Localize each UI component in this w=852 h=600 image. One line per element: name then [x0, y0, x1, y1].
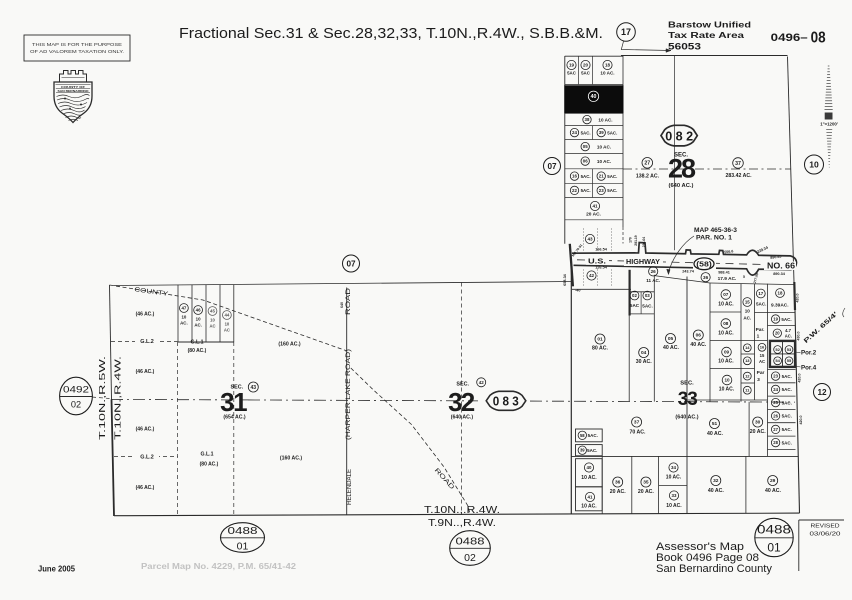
- svg-text:0488: 0488: [456, 536, 485, 548]
- svg-text:70 AC.: 70 AC.: [630, 430, 647, 436]
- svg-text:30: 30: [755, 420, 761, 426]
- svg-text:Barstow Unified: Barstow Unified: [668, 20, 751, 30]
- svg-text:01: 01: [237, 541, 249, 553]
- svg-text:REVISED: REVISED: [811, 524, 840, 530]
- svg-text:58: 58: [580, 433, 585, 438]
- svg-text:0488: 0488: [757, 523, 791, 537]
- svg-text:06: 06: [583, 159, 588, 164]
- svg-text:10 AC.: 10 AC.: [598, 118, 612, 123]
- svg-text:05: 05: [583, 144, 588, 149]
- svg-text:19: 19: [569, 63, 575, 68]
- svg-text:Tax Rate Area: Tax Rate Area: [668, 30, 744, 40]
- svg-text:10: 10: [724, 378, 730, 383]
- svg-text:12: 12: [817, 388, 827, 397]
- svg-text:02: 02: [71, 400, 81, 410]
- svg-text:02: 02: [464, 552, 476, 564]
- svg-text:0 8 2: 0 8 2: [665, 128, 693, 143]
- svg-text:10 AC.: 10 AC.: [718, 301, 734, 307]
- svg-text:890.34: 890.34: [773, 272, 786, 276]
- svg-text:05: 05: [668, 336, 674, 342]
- svg-text:(80 AC.): (80 AC.): [200, 462, 219, 468]
- svg-text:18: 18: [605, 63, 611, 68]
- svg-text:166.54: 166.54: [595, 248, 608, 252]
- svg-text:MAP 465-36-3: MAP 465-36-3: [694, 227, 738, 234]
- svg-text:41: 41: [592, 204, 598, 209]
- svg-text:10 AC.: 10 AC.: [600, 71, 614, 76]
- svg-text:45: 45: [210, 309, 215, 314]
- svg-text:AC: AC: [759, 359, 765, 364]
- svg-text:47: 47: [181, 306, 186, 311]
- svg-text:5AC: 5AC: [630, 303, 640, 308]
- svg-text:36: 36: [615, 480, 621, 486]
- svg-text:44: 44: [224, 313, 229, 318]
- svg-text:(80 AC.): (80 AC.): [188, 348, 207, 354]
- svg-text:AC: AC: [224, 328, 230, 333]
- svg-text:19: 19: [773, 317, 778, 322]
- svg-text:21: 21: [599, 174, 604, 179]
- svg-text:5: 5: [743, 275, 745, 279]
- svg-text:1: 1: [757, 334, 760, 340]
- svg-text:17.9 AC.: 17.9 AC.: [718, 276, 737, 282]
- svg-text:HELENDALE: HELENDALE: [346, 469, 353, 505]
- svg-text:T.9N..,R.4W.: T.9N..,R.4W.: [428, 518, 496, 529]
- svg-text:138.2 AC.: 138.2 AC.: [636, 174, 660, 180]
- svg-text:5AC: 5AC: [567, 71, 577, 76]
- svg-text:40 AC.: 40 AC.: [663, 345, 680, 351]
- svg-text:430.0: 430.0: [797, 332, 801, 341]
- svg-text:5AC.: 5AC.: [587, 448, 597, 453]
- svg-text:T.10N.,.R.4W.: T.10N.,.R.4W.: [424, 505, 500, 516]
- svg-text:20: 20: [775, 331, 780, 336]
- svg-text:988.41: 988.41: [718, 271, 730, 275]
- svg-text:22: 22: [572, 188, 577, 193]
- svg-text:P.W. 65/4′: P.W. 65/4′: [803, 310, 840, 344]
- svg-text:Par: Par: [757, 370, 765, 376]
- svg-text:03: 03: [645, 293, 650, 298]
- svg-text:5AC.: 5AC.: [781, 317, 791, 322]
- svg-text:40 AC.: 40 AC.: [707, 431, 724, 437]
- svg-text:NO. 66: NO. 66: [767, 262, 796, 271]
- svg-text:29: 29: [770, 478, 776, 484]
- svg-text:0496–: 0496–: [771, 32, 808, 44]
- svg-text:5AC.: 5AC.: [782, 387, 792, 392]
- svg-text:(654 AC.): (654 AC.): [223, 414, 246, 420]
- svg-text:10: 10: [210, 318, 215, 323]
- svg-text:54: 54: [775, 358, 780, 363]
- svg-text:5AC.: 5AC.: [607, 174, 617, 179]
- svg-text:420.0: 420.0: [796, 294, 800, 303]
- svg-text:10 AC.: 10 AC.: [666, 474, 682, 480]
- svg-text:AC.: AC.: [743, 316, 751, 321]
- svg-text:G.L.1: G.L.1: [191, 340, 204, 346]
- svg-text:4.7: 4.7: [785, 328, 791, 333]
- svg-text:5AC.: 5AC.: [782, 440, 792, 445]
- svg-text:T.10N.,R.4W.: T.10N.,R.4W.: [114, 356, 123, 440]
- svg-text:13: 13: [745, 358, 750, 363]
- svg-text:18: 18: [778, 291, 783, 296]
- svg-text:25: 25: [773, 400, 778, 405]
- svg-text:15: 15: [760, 353, 765, 358]
- svg-text:10 AC.: 10 AC.: [597, 145, 611, 150]
- svg-text:46: 46: [196, 308, 201, 313]
- svg-text:20 AC.: 20 AC.: [586, 212, 601, 218]
- svg-text:42: 42: [479, 380, 485, 385]
- svg-text:San Bernardino County: San Bernardino County: [656, 563, 772, 575]
- svg-text:170: 170: [629, 237, 633, 243]
- svg-text:291.04: 291.04: [642, 237, 646, 247]
- svg-text:556.6: 556.6: [724, 249, 733, 254]
- svg-text:03/06/20: 03/06/20: [810, 532, 841, 538]
- svg-text:THIS MAP IS FOR THE PURPOSE: THIS MAP IS FOR THE PURPOSE: [32, 42, 122, 47]
- svg-text:5AC.: 5AC.: [782, 400, 792, 405]
- svg-text:17: 17: [758, 291, 763, 296]
- svg-text:27: 27: [644, 161, 650, 167]
- svg-text:40: 40: [591, 94, 597, 100]
- svg-text:10: 10: [181, 315, 186, 320]
- svg-text:10 AC.: 10 AC.: [718, 330, 734, 336]
- svg-text:243.74: 243.74: [682, 269, 695, 273]
- svg-text:640: 640: [340, 302, 344, 308]
- svg-text:(HARPER LAKE ROAD): (HARPER LAKE ROAD): [346, 349, 352, 440]
- svg-text:ROAD: ROAD: [345, 288, 352, 315]
- svg-text:39: 39: [580, 448, 585, 453]
- svg-text:5AC.: 5AC.: [756, 301, 766, 306]
- svg-text:26: 26: [773, 413, 778, 418]
- svg-text:17: 17: [621, 27, 631, 37]
- svg-text:10: 10: [225, 322, 230, 327]
- svg-text:229.34: 229.34: [756, 245, 769, 254]
- svg-text:16: 16: [760, 345, 765, 350]
- svg-text:5AC.: 5AC.: [607, 130, 617, 135]
- svg-text:658.34: 658.34: [563, 273, 567, 286]
- svg-text:16: 16: [572, 174, 577, 179]
- svg-text:20 AC.: 20 AC.: [610, 489, 627, 495]
- svg-text:40 AC.: 40 AC.: [708, 488, 725, 494]
- svg-text:10 AC.: 10 AC.: [581, 504, 597, 510]
- svg-text:01: 01: [597, 337, 603, 343]
- svg-text:39: 39: [599, 130, 604, 135]
- svg-text:43: 43: [251, 385, 257, 391]
- svg-text:(640 AC.): (640 AC.): [669, 183, 694, 189]
- svg-text:15: 15: [745, 300, 750, 305]
- svg-text:1"=1200′: 1"=1200′: [820, 122, 838, 127]
- svg-text:420.0: 420.0: [798, 374, 802, 383]
- svg-text:27: 27: [773, 427, 778, 432]
- svg-text:10 AC.: 10 AC.: [597, 159, 611, 164]
- svg-text:G.L.1: G.L.1: [201, 452, 214, 458]
- svg-text:43: 43: [587, 237, 593, 242]
- svg-text:June 2005: June 2005: [38, 565, 76, 574]
- svg-text:32: 32: [713, 478, 719, 484]
- svg-text:SAN BERNARDINO: SAN BERNARDINO: [58, 89, 90, 93]
- svg-text:08: 08: [723, 321, 729, 326]
- svg-text:10 AC.: 10 AC.: [666, 503, 682, 509]
- svg-text:38: 38: [585, 117, 590, 122]
- svg-text:10: 10: [809, 160, 819, 170]
- svg-text:11: 11: [745, 388, 750, 393]
- svg-text:PAR. NO. 1: PAR. NO. 1: [696, 235, 733, 242]
- svg-text:(640 AC.): (640 AC.): [451, 415, 474, 421]
- svg-text:53: 53: [787, 347, 792, 352]
- svg-text:Por.4: Por.4: [801, 365, 817, 372]
- svg-text:(46 AC.): (46 AC.): [136, 369, 155, 375]
- svg-text:51: 51: [712, 421, 718, 427]
- svg-text:0492: 0492: [63, 385, 89, 395]
- svg-text:283.42 AC.: 283.42 AC.: [725, 173, 752, 179]
- svg-text:20 AC.: 20 AC.: [638, 489, 655, 495]
- svg-text:30 AC.: 30 AC.: [636, 359, 653, 365]
- svg-text:26: 26: [651, 269, 657, 274]
- svg-text:20: 20: [583, 63, 589, 68]
- svg-text:08: 08: [811, 30, 826, 47]
- svg-text:OF AD VALOREM TAXATION ONLY.: OF AD VALOREM TAXATION ONLY.: [30, 49, 124, 54]
- svg-text:20 AC.: 20 AC.: [750, 429, 767, 435]
- svg-text:HIGHWAY: HIGHWAY: [626, 257, 660, 266]
- svg-text:Por.2: Por.2: [801, 350, 817, 357]
- svg-text:56053: 56053: [668, 42, 701, 53]
- svg-text:Par.: Par.: [756, 327, 765, 333]
- svg-text:9.39AC.: 9.39AC.: [771, 303, 789, 309]
- svg-text:52: 52: [775, 347, 780, 352]
- svg-text:5AC.: 5AC.: [607, 188, 617, 193]
- svg-text:35: 35: [643, 480, 649, 486]
- svg-text:5AC.: 5AC.: [782, 427, 792, 432]
- svg-text:07: 07: [723, 292, 729, 297]
- svg-text:04: 04: [641, 350, 647, 356]
- svg-text:40 AC.: 40 AC.: [765, 488, 782, 494]
- svg-text:Fractional Sec.31 & Sec.28,32,: Fractional Sec.31 & Sec.28,32,33, T.10N.…: [179, 25, 603, 42]
- svg-text:42: 42: [589, 273, 595, 278]
- svg-text:COUNTY: COUNTY: [134, 286, 169, 298]
- svg-text:33: 33: [672, 493, 677, 498]
- svg-text:ROAD: ROAD: [433, 467, 456, 491]
- svg-text:0488: 0488: [228, 525, 258, 537]
- svg-text:34: 34: [671, 465, 676, 470]
- svg-text:(160 AC.): (160 AC.): [280, 456, 303, 462]
- svg-text:23: 23: [773, 374, 778, 379]
- svg-text:40: 40: [587, 465, 592, 470]
- svg-text:5AC.: 5AC.: [581, 174, 591, 179]
- svg-text:5AC.: 5AC.: [588, 433, 598, 438]
- svg-text:AC.: AC.: [180, 321, 188, 326]
- svg-text:5AC.: 5AC.: [782, 414, 792, 419]
- svg-text:37: 37: [634, 420, 640, 426]
- svg-text:23: 23: [599, 188, 604, 193]
- svg-text:(46 AC.): (46 AC.): [136, 427, 155, 433]
- svg-text:10: 10: [745, 309, 751, 314]
- svg-text:0 8 3: 0 8 3: [493, 394, 519, 408]
- svg-text:24: 24: [773, 387, 778, 392]
- svg-text:40 AC.: 40 AC.: [690, 342, 707, 348]
- svg-text:10: 10: [196, 317, 201, 322]
- svg-text:14: 14: [745, 345, 750, 350]
- svg-text:890.45: 890.45: [770, 254, 781, 259]
- svg-text:41: 41: [588, 495, 593, 500]
- svg-text:07: 07: [547, 162, 557, 171]
- svg-text:24: 24: [572, 130, 577, 135]
- svg-text:3: 3: [757, 377, 760, 383]
- svg-text:AC: AC: [209, 324, 215, 329]
- svg-text:80 AC.: 80 AC.: [592, 346, 609, 352]
- svg-text:AC.: AC.: [785, 333, 792, 338]
- svg-text:02: 02: [632, 293, 637, 298]
- svg-text:281.19: 281.19: [634, 235, 638, 245]
- svg-text:Parcel Map No. 4229, P.M. 65/4: Parcel Map No. 4229, P.M. 65/41-42: [141, 562, 297, 571]
- svg-text:AC.: AC.: [194, 323, 202, 328]
- svg-text:36: 36: [703, 275, 709, 280]
- svg-text:5AC: 5AC: [581, 71, 591, 76]
- svg-text:(46 AC.): (46 AC.): [136, 485, 155, 491]
- svg-text:1: 1: [233, 387, 247, 417]
- svg-text:06: 06: [696, 333, 702, 339]
- svg-text:8: 8: [681, 154, 696, 184]
- svg-text:(46 AC.): (46 AC.): [136, 312, 155, 318]
- svg-text:28: 28: [773, 440, 778, 445]
- svg-text:G.L.2: G.L.2: [140, 339, 153, 345]
- svg-text:09: 09: [724, 350, 730, 355]
- svg-text:01: 01: [767, 541, 781, 555]
- svg-text:5AC.: 5AC.: [782, 374, 792, 379]
- svg-text:MB 70-91: MB 70-91: [571, 243, 583, 257]
- svg-text:10 AC.: 10 AC.: [718, 359, 734, 365]
- svg-text:10 AC.: 10 AC.: [719, 387, 735, 393]
- svg-text:07: 07: [346, 259, 356, 268]
- svg-text:(160 AC.): (160 AC.): [278, 342, 301, 348]
- svg-text:U.S.: U.S.: [588, 256, 606, 265]
- svg-text:11 AC.: 11 AC.: [646, 278, 660, 283]
- svg-text:37: 37: [735, 161, 741, 167]
- svg-text:2: 2: [461, 387, 475, 417]
- svg-text:G.L.2: G.L.2: [140, 455, 153, 461]
- svg-text:10 AC.: 10 AC.: [581, 475, 597, 481]
- svg-text:5AC.: 5AC.: [642, 304, 652, 309]
- svg-text:12: 12: [745, 374, 750, 379]
- svg-text:55: 55: [787, 358, 792, 363]
- svg-text:5AC.: 5AC.: [581, 188, 591, 193]
- svg-text:420.0: 420.0: [799, 416, 803, 425]
- svg-text:5AC.: 5AC.: [581, 130, 591, 135]
- svg-text:(58): (58): [696, 261, 712, 268]
